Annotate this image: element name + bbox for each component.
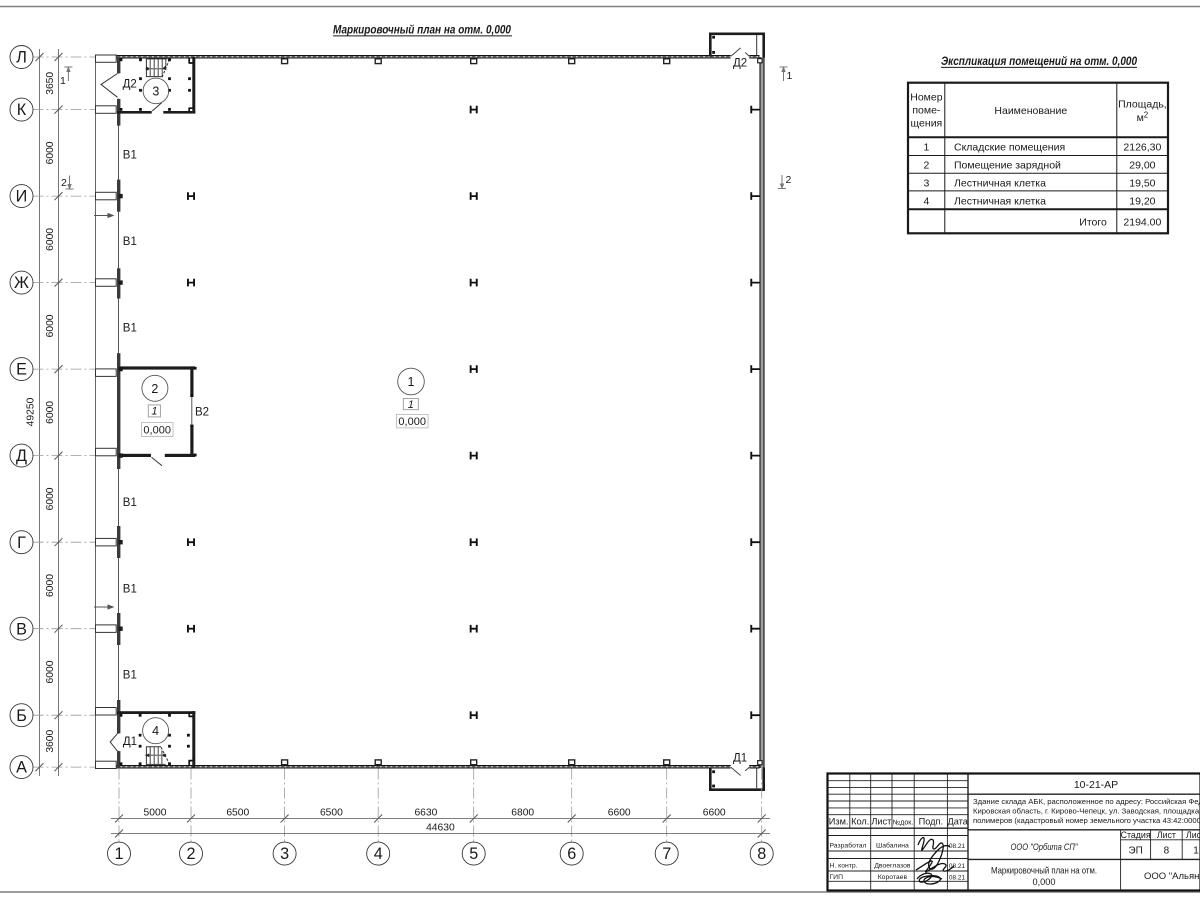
svg-text:6000: 6000 — [45, 401, 56, 424]
svg-text:Итого: Итого — [1079, 217, 1107, 229]
svg-text:Изм.: Изм. — [829, 817, 849, 827]
svg-text:ГИП: ГИП — [830, 874, 844, 881]
svg-text:1: 1 — [114, 845, 123, 863]
svg-text:В1: В1 — [123, 236, 137, 248]
svg-text:Разработал: Разработал — [830, 842, 867, 850]
svg-text:Лис: Лис — [1186, 830, 1200, 840]
svg-text:6000: 6000 — [45, 141, 56, 164]
svg-text:В1: В1 — [123, 149, 137, 161]
svg-text:ЭП: ЭП — [1128, 846, 1142, 857]
svg-text:Б: Б — [16, 707, 27, 725]
svg-text:м2: м2 — [1137, 111, 1149, 125]
svg-text:7: 7 — [662, 845, 671, 863]
svg-text:6630: 6630 — [414, 808, 437, 819]
svg-text:Е: Е — [16, 361, 27, 379]
svg-text:1: 1 — [1193, 846, 1199, 857]
svg-text:6600: 6600 — [703, 808, 726, 819]
svg-text:Площадь,: Площадь, — [1118, 99, 1167, 111]
svg-text:Ж: Ж — [14, 274, 29, 292]
svg-text:8: 8 — [1164, 846, 1170, 857]
svg-text:2126,30: 2126,30 — [1123, 142, 1161, 154]
svg-text:10-21-АР: 10-21-АР — [1074, 779, 1118, 791]
svg-text:8: 8 — [757, 845, 766, 863]
svg-text:Г: Г — [17, 534, 26, 552]
svg-text:0,000: 0,000 — [143, 425, 171, 437]
svg-text:Д2: Д2 — [123, 78, 137, 90]
svg-text:Кол.: Кол. — [851, 817, 869, 827]
svg-text:Шабалина: Шабалина — [876, 842, 909, 850]
svg-text:44630: 44630 — [426, 823, 455, 834]
svg-text:4: 4 — [374, 845, 383, 863]
svg-text:щения: щения — [911, 118, 943, 130]
svg-text:И: И — [16, 188, 28, 206]
svg-text:Н. контр.: Н. контр. — [830, 862, 858, 869]
svg-text:3: 3 — [280, 845, 289, 863]
svg-text:Лист: Лист — [871, 817, 892, 827]
svg-text:Лист: Лист — [1157, 830, 1176, 840]
svg-text:Здание склада АБК, расположенн: Здание склада АБК, расположенное по адре… — [973, 797, 1200, 806]
svg-text:В2: В2 — [195, 407, 209, 419]
svg-text:В1: В1 — [123, 670, 137, 682]
svg-text:2: 2 — [61, 177, 67, 189]
svg-text:К: К — [17, 101, 27, 119]
svg-text:1: 1 — [408, 399, 414, 411]
svg-text:6000: 6000 — [45, 314, 56, 337]
svg-text:3650: 3650 — [45, 72, 56, 95]
svg-text:49250: 49250 — [26, 397, 37, 426]
svg-text:1: 1 — [787, 70, 793, 82]
svg-text:Д2: Д2 — [733, 58, 747, 70]
svg-text:3: 3 — [923, 177, 929, 189]
svg-text:0,000: 0,000 — [1033, 877, 1056, 887]
svg-text:6000: 6000 — [45, 574, 56, 597]
svg-text:В1: В1 — [123, 323, 137, 335]
svg-text:Помещение зарядной: Помещение зарядной — [954, 160, 1061, 172]
svg-text:ООО "Альянспроект": ООО "Альянспроект" — [1144, 871, 1200, 882]
svg-text:1: 1 — [151, 405, 157, 417]
svg-text:Д: Д — [16, 447, 27, 465]
svg-text:3: 3 — [152, 84, 159, 98]
svg-text:Л: Л — [16, 49, 27, 67]
svg-text:2194.00: 2194.00 — [1123, 217, 1161, 229]
svg-text:08.21: 08.21 — [949, 843, 966, 850]
svg-text:А: А — [16, 759, 27, 777]
svg-text:29,00: 29,00 — [1129, 160, 1155, 172]
svg-text:Номер: Номер — [910, 92, 942, 104]
svg-text:поме-: поме- — [912, 105, 941, 117]
svg-text:5: 5 — [469, 845, 478, 863]
svg-text:6800: 6800 — [511, 808, 534, 819]
svg-text:2: 2 — [186, 845, 195, 863]
svg-text:Коротаев: Коротаев — [878, 874, 908, 881]
svg-text:5000: 5000 — [144, 808, 167, 819]
svg-text:Лестничная клетка: Лестничная клетка — [954, 195, 1046, 207]
svg-text:19,20: 19,20 — [1129, 195, 1155, 207]
svg-text:Д1: Д1 — [733, 753, 747, 765]
svg-text:Двоеглазов: Двоеглазов — [874, 862, 911, 869]
svg-text:Экспликация помещений на отм.: Экспликация помещений на отм. 0,000 — [941, 54, 1137, 68]
svg-text:Стадия: Стадия — [1121, 830, 1151, 840]
svg-text:1: 1 — [408, 375, 415, 389]
svg-text:4: 4 — [923, 195, 929, 207]
svg-text:Д1: Д1 — [123, 736, 137, 748]
svg-text:№док.: №док. — [893, 820, 914, 827]
svg-text:6000: 6000 — [45, 228, 56, 251]
svg-text:Подп.: Подп. — [919, 817, 943, 827]
svg-text:08.21: 08.21 — [949, 874, 966, 881]
svg-text:6600: 6600 — [608, 808, 631, 819]
svg-text:Лестничная клетка: Лестничная клетка — [954, 177, 1046, 189]
svg-text:6500: 6500 — [226, 808, 249, 819]
svg-text:0,000: 0,000 — [398, 416, 426, 428]
svg-text:1: 1 — [923, 142, 929, 154]
svg-text:2: 2 — [151, 382, 158, 396]
svg-text:6500: 6500 — [320, 808, 343, 819]
svg-text:6000: 6000 — [45, 660, 56, 683]
svg-text:полимеров (кадастровый номер з: полимеров (кадастровый номер земельного … — [973, 816, 1200, 825]
svg-text:В: В — [16, 620, 27, 638]
svg-text:6000: 6000 — [45, 487, 56, 510]
svg-text:4: 4 — [152, 724, 159, 738]
svg-text:Маркировочный план на отм.: Маркировочный план на отм. — [991, 866, 1097, 876]
svg-text:Дата: Дата — [948, 817, 969, 827]
svg-text:Кировская область, г. Кирово-Ч: Кировская область, г. Кирово-Чепецк, ул.… — [973, 807, 1200, 816]
svg-text:В1: В1 — [123, 497, 137, 509]
svg-text:ООО "Орбита СП": ООО "Орбита СП" — [1011, 842, 1078, 853]
svg-text:2: 2 — [923, 160, 929, 172]
svg-text:3600: 3600 — [45, 729, 56, 752]
svg-text:В1: В1 — [123, 584, 137, 596]
svg-text:2: 2 — [786, 174, 792, 186]
svg-text:6: 6 — [567, 845, 576, 863]
svg-text:Наименование: Наименование — [994, 105, 1067, 117]
svg-text:19,50: 19,50 — [1129, 177, 1155, 189]
svg-text:Маркировочный план на отм. 0,0: Маркировочный план на отм. 0,000 — [333, 22, 511, 36]
svg-text:Складские помещения: Складские помещения — [954, 142, 1065, 154]
svg-text:1: 1 — [60, 75, 66, 87]
